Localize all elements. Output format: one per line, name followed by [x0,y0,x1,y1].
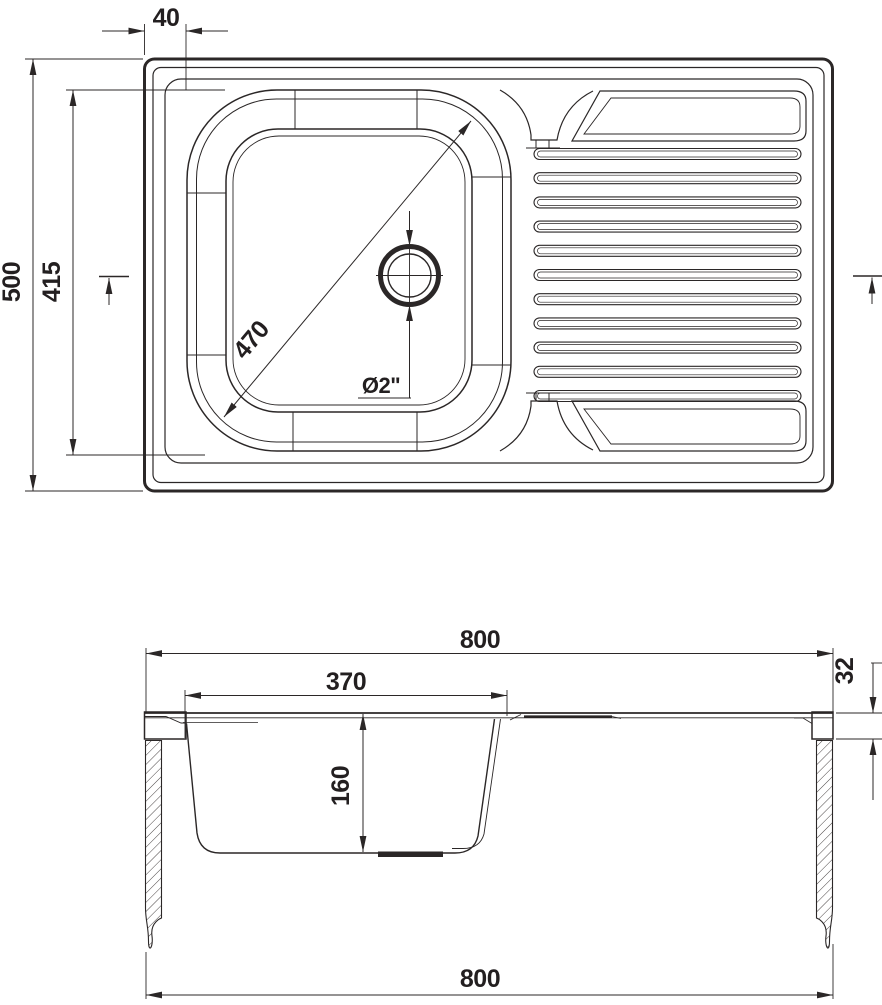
dimension-bowl-width: 370 [185,668,507,738]
dimension-edge-offset: 40 [102,4,228,90]
drain-outlet [378,852,443,858]
drainboard-rib [534,245,801,256]
top-view: Ø2" 470 40 500 [0,4,882,491]
drainboard-rib-inner [538,320,798,326]
edge-offset-label: 40 [153,4,180,32]
drainboard-rib [534,366,801,377]
drainboard-rib-inner [538,272,798,278]
drainboard-rib [534,270,801,281]
dimension-width-top: 800 [146,626,833,712]
drainboard-rib-inner [538,199,798,205]
drainboard-rib-inner [538,151,798,157]
left-leg-hatch [146,741,162,949]
dimension-overall-depth: 500 [0,59,143,491]
dimension-rim-height: 32 [831,658,882,800]
support-legs [146,741,833,949]
drainboard-rib-inner [538,248,798,254]
overall-depth-label: 500 [0,262,26,302]
drainboard-rib [534,173,801,184]
drain-hole [376,247,443,305]
width-bottom-label: 800 [460,965,500,993]
drain-diameter-label: Ø2" [362,373,400,398]
width-top-label: 800 [460,626,500,654]
bowl-band-ticks [187,90,511,451]
drainboard-panels [572,91,806,451]
bowl-width-label: 370 [326,668,366,696]
bowl-outline [187,90,511,451]
sink-technical-drawing: Ø2" 470 40 500 [0,0,882,1000]
drainboard-rib [534,318,801,329]
centerline-marker-left [99,277,129,306]
drainboard-rib-inner [538,175,798,181]
drainboard-rib [534,197,801,208]
dimension-bowl-depth: 160 [327,714,363,852]
rim-left-block [145,712,259,739]
section-view: 800 370 160 32 [144,626,882,999]
section-top-surface [144,713,833,724]
drainboard-rib [534,391,801,402]
drawing-canvas: Ø2" 470 40 500 [0,0,882,1000]
inner-depth-label: 415 [38,261,66,302]
bowl-diagonal-label: 470 [228,316,275,365]
drainboard-rib [534,342,801,353]
rim-right-block [812,712,833,739]
sink-outline [145,59,833,491]
drainboard-rib-inner [538,296,798,302]
drainboard-rib [534,221,801,232]
drainboard-ribs [534,149,801,402]
drainboard-rib [534,149,801,160]
drainboard-rib-inner [538,224,798,230]
drainboard-rib-inner [538,345,798,351]
drainboard-rib-inner [538,393,798,399]
drainboard-rib-inner [538,369,798,375]
rim-height-label: 32 [831,658,859,685]
drainboard-rib [534,294,801,305]
centerline-marker-right [853,276,882,304]
right-leg-hatch [817,741,833,949]
overflow-neck [500,90,593,451]
dimension-width-bottom: 800 [146,944,833,999]
bowl-depth-label: 160 [327,766,355,806]
dimension-bowl-diagonal: 470 [224,121,471,417]
